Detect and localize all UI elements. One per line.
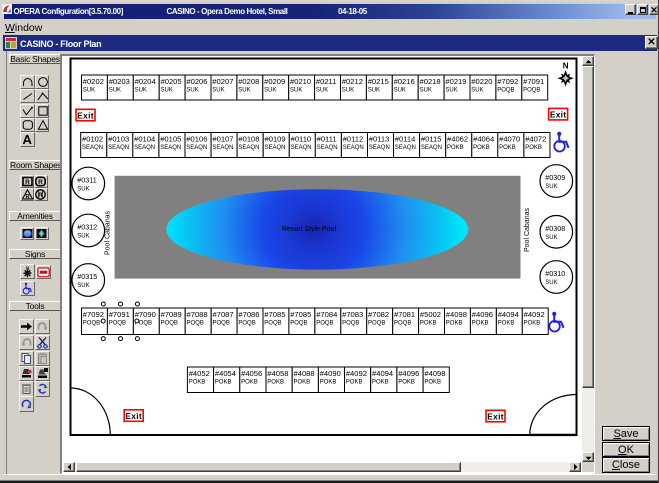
svg-text:#0113: #0113 [369,135,390,144]
svg-text:POQB: POQB [342,321,359,327]
svg-text:POQB: POQB [83,321,100,327]
svg-text:#4098: #4098 [446,310,467,319]
svg-text:SEAQN: SEAQN [238,145,259,151]
svg-text:#4054: #4054 [215,369,236,378]
svg-text:#0115: #0115 [421,135,442,144]
svg-text:POKB: POKB [398,380,415,386]
svg-text:SUK: SUK [161,88,173,94]
svg-text:Pool Cabanas: Pool Cabanas [105,211,112,255]
svg-text:#0206: #0206 [186,77,207,86]
svg-text:#0212: #0212 [342,77,363,86]
svg-text:#0315: #0315 [77,272,97,281]
svg-text:SEAQN: SEAQN [212,145,233,151]
svg-text:#0204: #0204 [135,77,156,86]
svg-text:SUK: SUK [368,88,380,94]
svg-text:POKB: POKB [472,321,489,327]
svg-text:#0110: #0110 [291,135,312,144]
svg-text:#0209: #0209 [264,77,285,86]
svg-text:#0108: #0108 [238,135,259,144]
svg-text:#4058: #4058 [267,369,288,378]
svg-text:#0308: #0308 [545,224,565,233]
svg-text:#0109: #0109 [265,135,286,144]
svg-text:POQB: POQB [290,321,307,327]
svg-text:SUK: SUK [290,88,302,94]
svg-text:#0210: #0210 [290,77,311,86]
svg-text:POQB: POQB [368,321,385,327]
svg-text:SUK: SUK [342,88,354,94]
svg-text:#0219: #0219 [445,77,466,86]
svg-text:POKB: POKB [525,145,542,151]
svg-text:SUK: SUK [83,88,95,94]
svg-text:SUK: SUK [545,280,557,286]
svg-text:#0215: #0215 [368,77,389,86]
svg-text:POQB: POQB [497,88,514,94]
svg-text:POKB: POKB [294,380,311,386]
svg-text:#7088: #7088 [187,310,208,319]
svg-text:SEAQN: SEAQN [134,145,155,151]
svg-text:SUK: SUK [394,88,406,94]
svg-text:SUK: SUK [212,88,224,94]
svg-text:POKB: POKB [499,145,516,151]
svg-text:SUK: SUK [135,88,147,94]
svg-text:SEAQN: SEAQN [395,145,416,151]
svg-text:Exit: Exit [550,109,567,119]
svg-text:SUK: SUK [316,88,328,94]
svg-text:#4096: #4096 [398,369,419,378]
svg-text:POQB: POQB [109,321,126,327]
svg-text:#4070: #4070 [499,135,520,144]
svg-text:SEAQN: SEAQN [82,145,103,151]
svg-text:POKB: POKB [473,145,490,151]
svg-text:POKB: POKB [524,321,541,327]
svg-text:#4094: #4094 [498,310,519,319]
svg-text:#7091: #7091 [109,310,130,319]
svg-text:#4092: #4092 [346,369,367,378]
svg-text:#4088: #4088 [294,369,315,378]
svg-text:#0211: #0211 [316,77,337,86]
svg-text:#7087: #7087 [213,310,234,319]
svg-text:SEAQN: SEAQN [186,145,207,151]
svg-text:#7091: #7091 [523,77,544,86]
svg-text:#7090: #7090 [135,310,156,319]
svg-text:POQB: POQB [213,321,230,327]
svg-text:#0312: #0312 [77,223,97,232]
svg-text:SUK: SUK [264,88,276,94]
svg-text:#0311: #0311 [77,176,96,185]
svg-text:#4064: #4064 [473,135,494,144]
svg-text:#4052: #4052 [189,369,210,378]
svg-text:POKB: POKB [346,380,363,386]
svg-text:Resort Style Pool: Resort Style Pool [282,226,337,233]
svg-text:SUK: SUK [545,235,557,241]
svg-text:POKB: POKB [372,380,389,386]
svg-text:#7081: #7081 [394,310,415,319]
svg-text:#4092: #4092 [524,310,545,319]
svg-text:SUK: SUK [109,88,121,94]
svg-text:#0218: #0218 [420,77,441,86]
svg-text:#7092: #7092 [83,310,104,319]
svg-text:POKB: POKB [241,380,258,386]
svg-text:#7082: #7082 [368,310,389,319]
svg-text:#7083: #7083 [342,310,363,319]
svg-text:#0220: #0220 [471,77,492,86]
svg-text:SEAQN: SEAQN [421,145,442,151]
svg-text:POKB: POKB [215,380,232,386]
svg-text:SUK: SUK [238,88,250,94]
svg-text:#4098: #4098 [424,369,445,378]
svg-text:SEAQN: SEAQN [265,145,286,151]
svg-text:POQB: POQB [264,321,281,327]
svg-text:N: N [563,62,569,71]
svg-text:SUK: SUK [471,88,483,94]
svg-text:SEAQN: SEAQN [343,145,364,151]
svg-text:SUK: SUK [77,234,89,240]
svg-text:R: R [38,179,43,186]
svg-text:#7085: #7085 [264,310,285,319]
svg-text:POQB: POQB [238,321,255,327]
svg-text:#7084: #7084 [316,310,337,319]
svg-text:POQB: POQB [316,321,333,327]
svg-text:SUK: SUK [186,88,198,94]
svg-text:POKB: POKB [446,321,463,327]
svg-text:#0203: #0203 [109,77,130,86]
svg-text:SUK: SUK [77,187,89,193]
svg-text:#0106: #0106 [186,135,207,144]
svg-text:#7085: #7085 [290,310,311,319]
svg-text:Exit: Exit [487,411,504,421]
svg-text:SEAQN: SEAQN [160,145,181,151]
svg-text:#0207: #0207 [212,77,233,86]
svg-text:#4072: #4072 [525,135,546,144]
svg-text:#0208: #0208 [238,77,259,86]
svg-text:#4056: #4056 [241,369,262,378]
svg-text:#7086: #7086 [238,310,259,319]
svg-text:#0205: #0205 [161,77,182,86]
svg-text:R: R [25,194,30,200]
svg-text:SEAQN: SEAQN [108,145,129,151]
svg-text:POQB: POQB [161,321,178,327]
svg-text:#0114: #0114 [395,135,416,144]
svg-text:SEAQN: SEAQN [369,145,390,151]
svg-text:POKB: POKB [189,380,206,386]
svg-text:POKB: POKB [498,321,515,327]
svg-text:#4090: #4090 [320,369,341,378]
svg-text:#0105: #0105 [160,135,181,144]
svg-text:#7089: #7089 [161,310,182,319]
svg-text:SEAQN: SEAQN [291,145,312,151]
svg-text:POKB: POKB [420,321,437,327]
svg-text:SUK: SUK [420,88,432,94]
svg-text:Pool Cabanas: Pool Cabanas [524,208,531,252]
svg-text:#0112: #0112 [343,135,364,144]
svg-text:POQB: POQB [187,321,204,327]
svg-text:#0310: #0310 [545,269,565,278]
svg-text:POKB: POKB [320,380,337,386]
svg-text:POKB: POKB [424,380,441,386]
svg-text:SUK: SUK [445,88,457,94]
svg-text:SUK: SUK [545,184,557,190]
svg-text:#0103: #0103 [108,135,129,144]
svg-text:#4062: #4062 [447,135,468,144]
svg-text:Exit: Exit [125,411,142,421]
svg-text:#4096: #4096 [472,310,493,319]
svg-text:#0309: #0309 [545,173,565,182]
svg-text:#7092: #7092 [497,77,518,86]
svg-text:R: R [25,179,30,186]
svg-text:POKB: POKB [267,380,284,386]
svg-text:#0107: #0107 [212,135,233,144]
svg-text:#0102: #0102 [82,135,103,144]
svg-text:POQB: POQB [394,321,411,327]
svg-text:#0104: #0104 [134,135,155,144]
svg-text:SEAQN: SEAQN [317,145,338,151]
svg-text:#5002: #5002 [420,310,441,319]
svg-text:#0111: #0111 [317,135,337,144]
svg-text:#0216: #0216 [394,77,415,86]
svg-text:#4094: #4094 [372,369,393,378]
svg-text:SUK: SUK [77,283,89,289]
svg-text:Exit: Exit [77,110,94,120]
svg-text:POQB: POQB [523,88,540,94]
svg-text:#0202: #0202 [83,77,104,86]
svg-text:POKB: POKB [447,145,464,151]
